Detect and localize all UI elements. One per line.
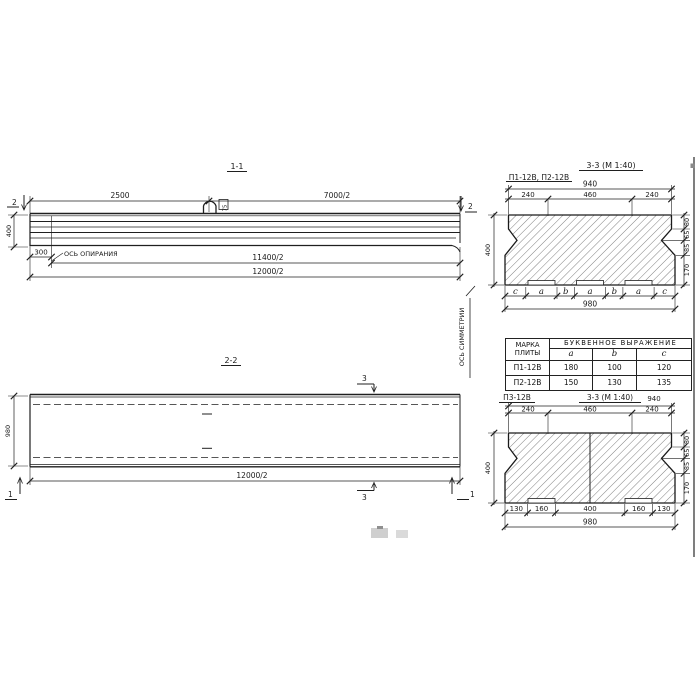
table-cell-a-p2: 150 bbox=[550, 376, 593, 391]
table-cell-c-p2: 135 bbox=[637, 376, 692, 391]
letter-a-1: a bbox=[539, 287, 544, 297]
cut-label-1-right: 1 bbox=[470, 490, 475, 499]
cut-label-1-left: 1 bbox=[8, 490, 13, 499]
table-header-group: БУКВЕННОЕ ВЫРАЖЕНИЕ bbox=[550, 339, 692, 349]
dim-300: 300 bbox=[34, 249, 47, 257]
dim-right-170-bottom: 170 bbox=[683, 482, 691, 494]
bottom-grooves-p1p2 bbox=[528, 281, 652, 286]
dim-400-bottom-section: 400 bbox=[484, 462, 492, 474]
dim-240-left-bottom: 240 bbox=[521, 406, 534, 414]
table-row-p2: П2-12В 150 130 135 bbox=[506, 376, 692, 391]
letter-c-1: c bbox=[513, 287, 518, 297]
section-2-2-title: 2-2 bbox=[224, 356, 237, 365]
letter-a-2: a bbox=[587, 287, 592, 297]
table-header-mark: МАРКА ПЛИТЫ bbox=[506, 339, 550, 361]
cut-mark-3-top bbox=[357, 384, 377, 392]
dim-right-85-bottom: 85 bbox=[683, 462, 691, 470]
cut-label-2-left: 2 bbox=[12, 198, 17, 207]
dim-400-top-section: 400 bbox=[484, 244, 492, 256]
dim-12000-2-elevation: 12000/2 bbox=[252, 267, 283, 276]
dim-right-85-top: 85 bbox=[683, 244, 691, 252]
table-col-b: b bbox=[593, 349, 637, 361]
letter-c-2: c bbox=[662, 287, 667, 297]
dim-980-plan: 980 bbox=[4, 425, 12, 437]
section-3-3-top-title: 3-3 (М 1:40) bbox=[586, 161, 635, 170]
letter-b-2: b bbox=[612, 287, 617, 297]
dim-240-left-top: 240 bbox=[521, 191, 534, 199]
dim-160-right: 160 bbox=[632, 505, 645, 513]
dim-980-top-section: 980 bbox=[583, 300, 598, 309]
cut-label-3-bottom: 3 bbox=[362, 493, 367, 502]
table-cell-mark-p1: П1-12В bbox=[506, 361, 550, 376]
section-3-3-bottom-title: 3-3 (М 1:40) bbox=[587, 393, 633, 402]
section-1-1-view bbox=[7, 172, 477, 282]
table-cell-b-p2: 130 bbox=[593, 376, 637, 391]
dim-11400-2: 11400/2 bbox=[252, 253, 283, 262]
dim-130-right: 130 bbox=[657, 505, 670, 513]
dim-right-80-top: 80 bbox=[683, 218, 691, 226]
dim-940-top: 940 bbox=[583, 180, 598, 189]
letter-b-1: b bbox=[563, 287, 568, 297]
cut-label-3-top: 3 bbox=[362, 374, 367, 383]
dim-460-top: 460 bbox=[583, 191, 596, 199]
section-3-3-bottom-label: П3-12В bbox=[503, 393, 531, 402]
cut-label-2-right: 2 bbox=[468, 202, 473, 211]
dim-right-65-bottom: 65 bbox=[683, 449, 691, 457]
dim-right-65-top: 65 bbox=[683, 231, 691, 239]
letter-a-3: a bbox=[636, 287, 641, 297]
table-col-a: a bbox=[550, 349, 593, 361]
table-cell-b-p1: 100 bbox=[593, 361, 637, 376]
dim-12000-2-plan: 12000/2 bbox=[236, 471, 267, 480]
table-cell-mark-p2: П2-12В bbox=[506, 376, 550, 391]
blueprint-sheet: 1-1 2500 7000/2 2 2 400 300 ОСЬ ОПИРАНИЯ… bbox=[0, 0, 700, 700]
dim-right-170-top: 170 bbox=[683, 264, 691, 276]
slab-spec-table: МАРКА ПЛИТЫ БУКВЕННОЕ ВЫРАЖЕНИЕ a b c П1… bbox=[505, 338, 692, 391]
dim-980-bottom-section: 980 bbox=[583, 518, 598, 527]
table-header-mark-line2: ПЛИТЫ bbox=[507, 350, 548, 357]
support-axis-label: ОСЬ ОПИРАНИЯ bbox=[64, 250, 118, 258]
slab-cross-section-p1p2 bbox=[505, 215, 675, 285]
dim-240-right-bottom: 240 bbox=[645, 406, 658, 414]
dim-160-left: 160 bbox=[535, 505, 548, 513]
symmetry-axis-label: ОСЬ СИММЕТРИИ bbox=[458, 308, 466, 367]
dim-240-right-top: 240 bbox=[645, 191, 658, 199]
dim-130-left: 130 bbox=[510, 505, 523, 513]
symmetry-axis-leader bbox=[466, 286, 475, 378]
section-2-2-view bbox=[5, 286, 475, 500]
dim-400-mid: 400 bbox=[583, 505, 596, 513]
dim-7000-2: 7000/2 bbox=[324, 191, 351, 200]
dim-940-bottom: 940 bbox=[647, 395, 660, 403]
loop-dim-label: 75 bbox=[223, 204, 229, 211]
section-1-1-title: 1-1 bbox=[230, 162, 243, 171]
dim-2500: 2500 bbox=[110, 191, 129, 200]
table-row-p1: П1-12В 180 100 120 bbox=[506, 361, 692, 376]
table-cell-c-p1: 120 bbox=[637, 361, 692, 376]
cut-mark-3-bottom bbox=[357, 483, 377, 491]
dim-460-bottom: 460 bbox=[583, 406, 596, 414]
dim-right-80-bottom: 80 bbox=[683, 436, 691, 444]
dim-400-elevation: 400 bbox=[5, 225, 13, 237]
table-col-c: c bbox=[637, 349, 692, 361]
section-3-3-top-subtitle: П1-12В, П2-12В bbox=[509, 173, 569, 182]
table-cell-a-p1: 180 bbox=[550, 361, 593, 376]
scan-smudges bbox=[371, 526, 408, 538]
